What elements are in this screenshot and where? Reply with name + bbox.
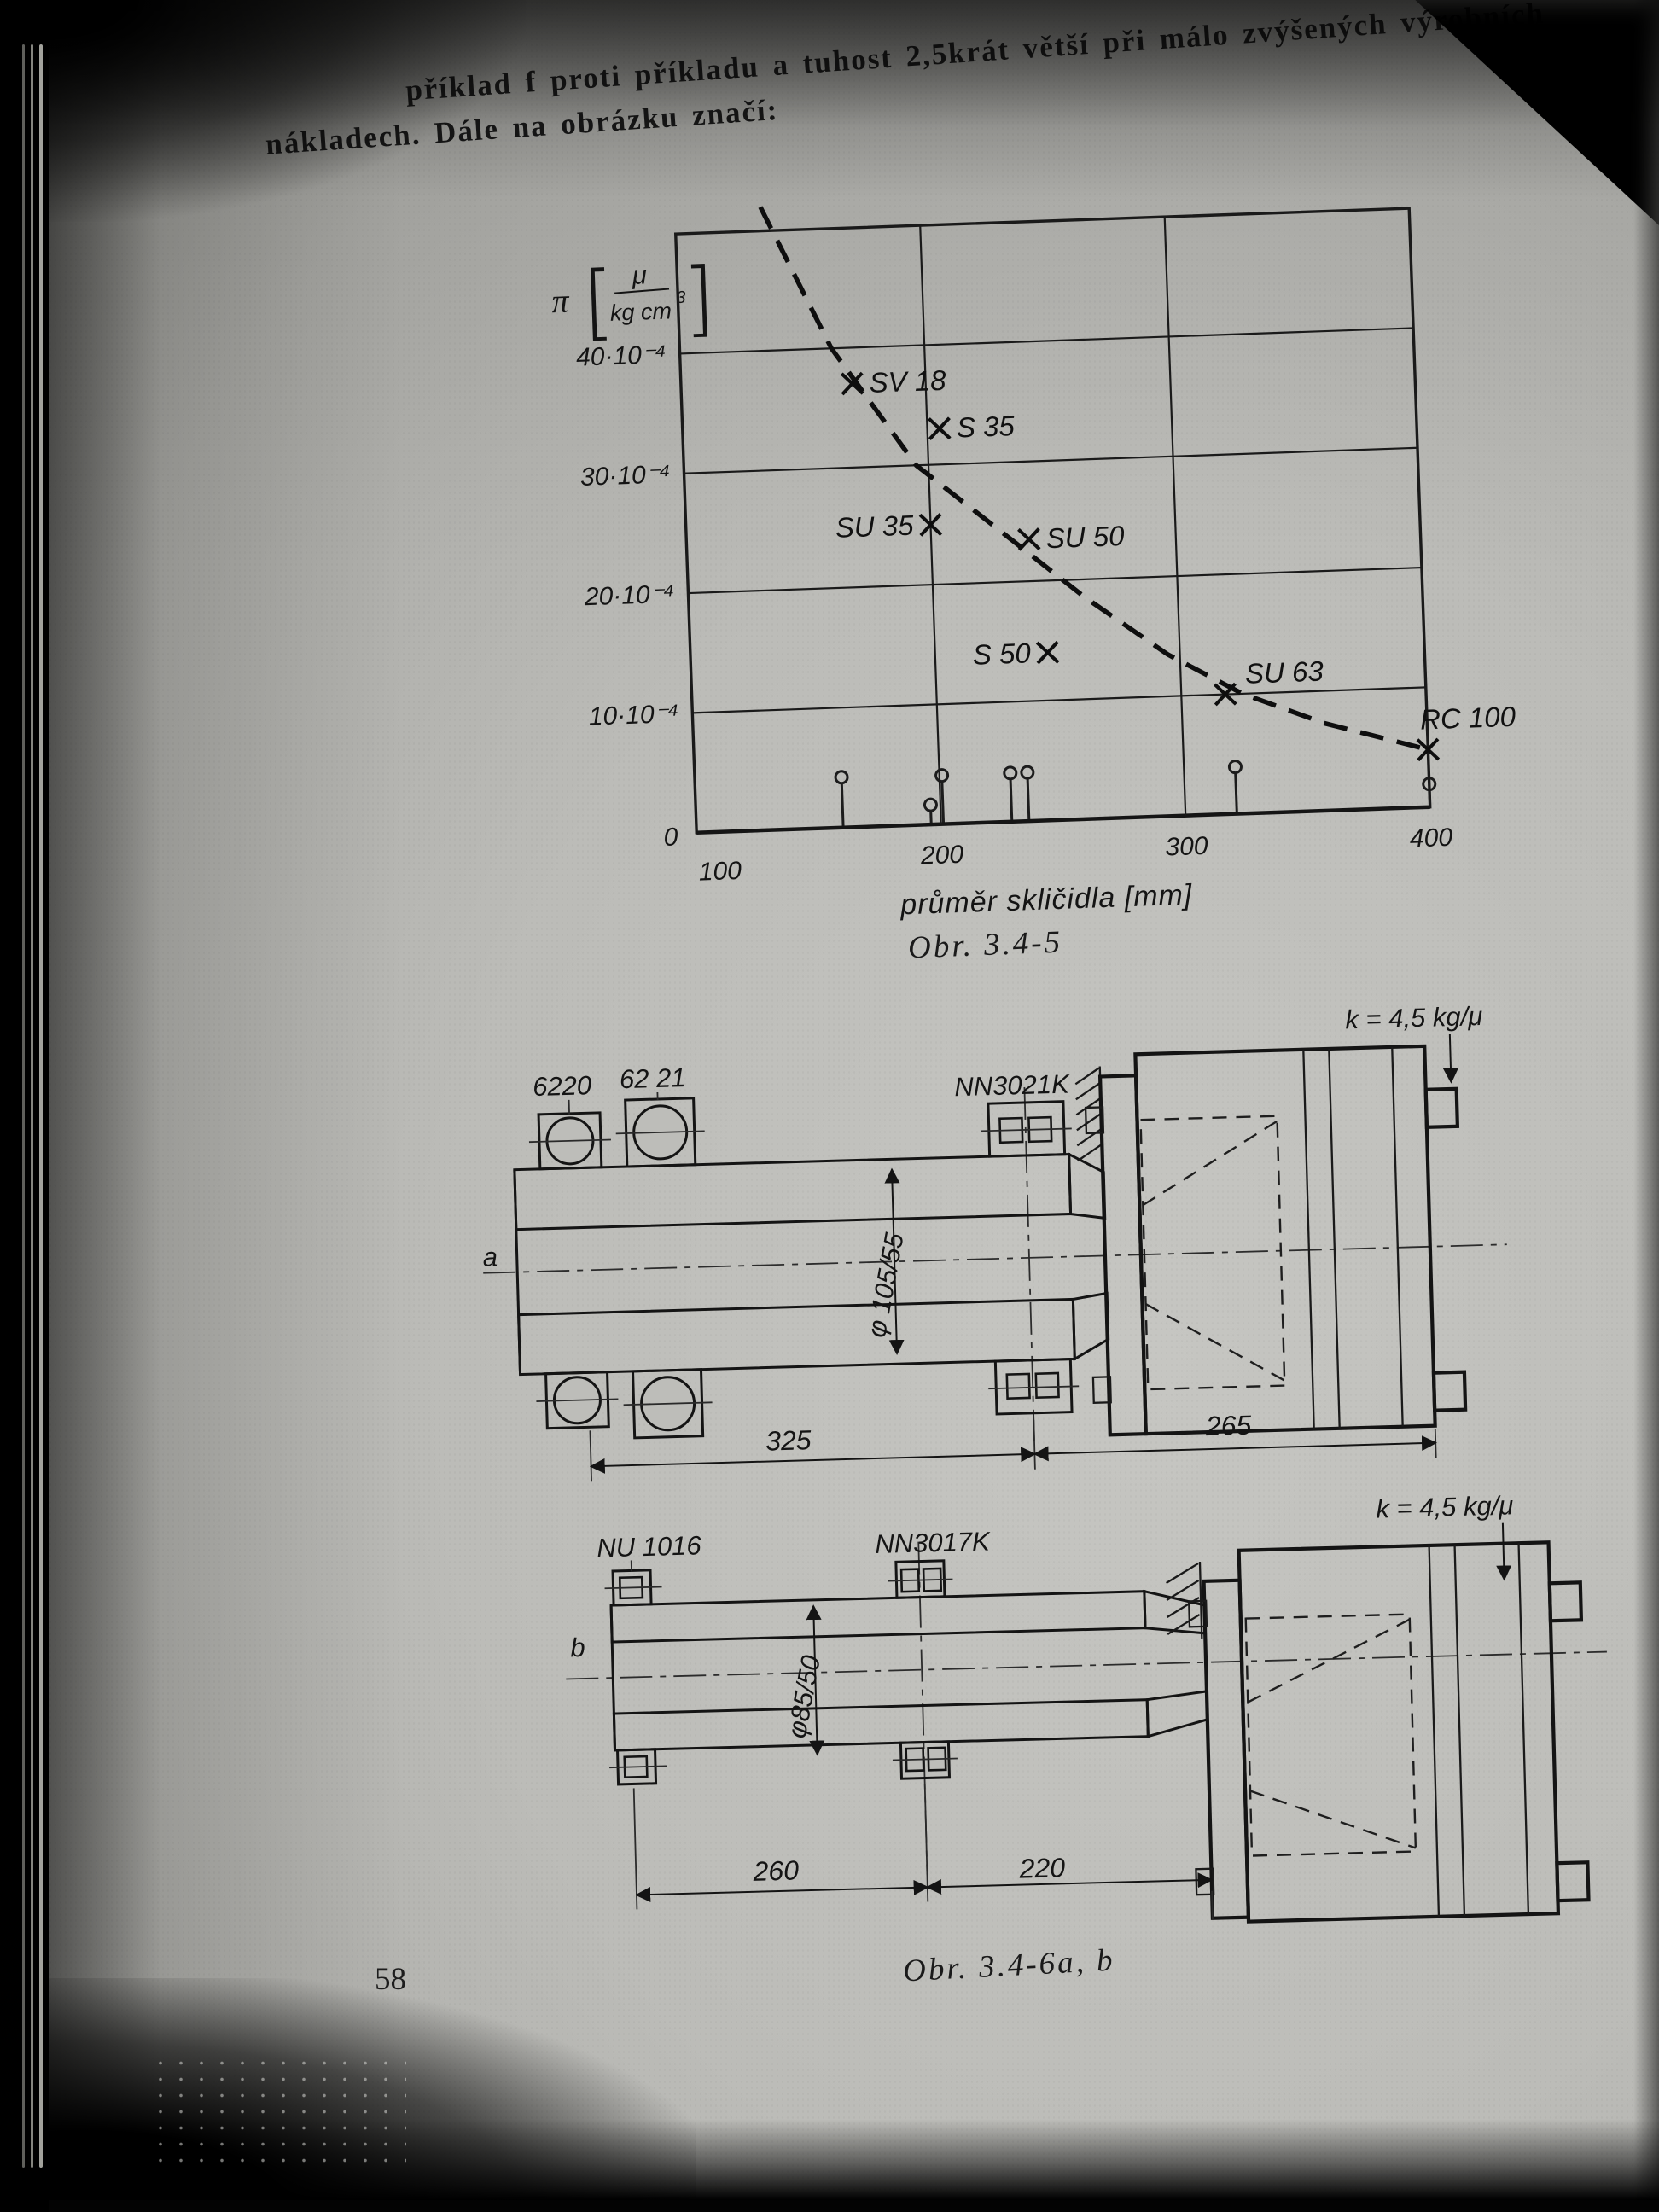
axis-pin-head xyxy=(935,769,947,781)
chuck xyxy=(1239,1541,1589,1921)
x-gridline xyxy=(1165,217,1185,816)
point-label: SU 50 xyxy=(1045,520,1126,554)
bearing-label-nn3017k: NN3017K xyxy=(875,1526,992,1559)
y-axis-unit-label: π [ μ kg cm 3 ] xyxy=(550,250,717,352)
axis-pin xyxy=(1027,778,1029,819)
axis-pin-head xyxy=(1004,767,1016,779)
paragraph-line-1: příklad f proti příkladu a tuhost 2,5krá… xyxy=(405,0,1659,113)
origin-label: 0 xyxy=(663,823,678,852)
chart-plot: π [ μ kg cm 3 ] 40·10⁻⁴30·10⁻⁴20·10⁻⁴10·… xyxy=(546,166,1605,987)
pi-symbol: π xyxy=(551,282,571,321)
axis-pin-head xyxy=(1022,766,1033,778)
point-label: SU 63 xyxy=(1244,655,1324,690)
paragraph: příklad f proti příkladu a tuhost 2,5krá… xyxy=(261,0,1659,167)
chuck xyxy=(1135,1045,1465,1434)
y-tick-label: 40·10⁻⁴ xyxy=(576,341,667,372)
axis-pin xyxy=(1429,790,1430,806)
x-tick-label: 300 xyxy=(1165,832,1208,862)
y-tick-label: 30·10⁻⁴ xyxy=(579,460,671,492)
y-tick-label: 20·10⁻⁴ xyxy=(583,580,675,612)
axis-pin xyxy=(1010,779,1012,820)
dim-260: 260 xyxy=(752,1854,800,1886)
axis-pin-head xyxy=(835,771,847,783)
page-edge xyxy=(31,44,33,2168)
shaft-label-a: a xyxy=(482,1242,498,1272)
bearing-label-nu1016: NU 1016 xyxy=(597,1530,702,1563)
unit-numerator: μ xyxy=(631,259,647,290)
paper-speckles xyxy=(150,2055,406,2174)
stiffness-label: k = 4,5 kg/μ xyxy=(1345,1001,1483,1034)
x-axis-title: průměr skličidla [mm] xyxy=(899,878,1194,921)
x-axis xyxy=(696,807,1429,833)
axis-pin-head xyxy=(1229,760,1241,772)
axis-pin xyxy=(1236,773,1237,812)
stiffness-arrow xyxy=(1450,1034,1452,1082)
stiffness-arrow xyxy=(1503,1523,1505,1580)
point-label: SU 35 xyxy=(835,509,915,544)
page-number: 58 xyxy=(375,1961,406,1998)
y-gridline xyxy=(684,448,1417,474)
shaft-label-b: b xyxy=(570,1633,585,1662)
centerline xyxy=(483,1244,1507,1273)
shadow-bottom xyxy=(48,2119,1659,2200)
x-tick-label: 200 xyxy=(919,841,963,870)
chart-frame xyxy=(676,208,1430,833)
y-gridline xyxy=(692,687,1425,713)
bearing-label-6220: 6220 xyxy=(533,1070,592,1102)
dim-325: 325 xyxy=(765,1424,812,1456)
chart-caption: Obr. 3.4-5 xyxy=(907,924,1063,967)
stiffness-label: k = 4,5 kg/μ xyxy=(1376,1490,1514,1523)
ball-bearing-6220 xyxy=(528,1113,619,1429)
bearing-label-6221: 62 21 xyxy=(619,1062,686,1094)
dim-220: 220 xyxy=(1018,1852,1066,1883)
book-spine xyxy=(0,0,49,2212)
unit-denominator: kg cm xyxy=(609,298,672,325)
page-edge xyxy=(22,44,25,2168)
paper-page: příklad f proti příkladu a tuhost 2,5krá… xyxy=(48,0,1659,2200)
scanned-book-page: příklad f proti příkladu a tuhost 2,5krá… xyxy=(0,0,1659,2212)
x-tick-label: 100 xyxy=(698,857,742,887)
y-gridline xyxy=(688,568,1421,593)
dim-265: 265 xyxy=(1204,1410,1252,1442)
x-tick-label: 400 xyxy=(1409,824,1452,853)
axis-pin xyxy=(841,783,843,826)
axis-pin xyxy=(942,782,944,823)
point-label: RC 100 xyxy=(1419,701,1516,736)
axis-pin-head xyxy=(924,799,936,811)
chart-figure: π [ μ kg cm 3 ] 40·10⁻⁴30·10⁻⁴20·10⁻⁴10·… xyxy=(546,166,1605,987)
point-label: S 50 xyxy=(972,637,1032,670)
centerline xyxy=(566,1652,1607,1679)
page-edge xyxy=(39,44,43,2168)
y-tick-label: 10·10⁻⁴ xyxy=(588,700,679,731)
bearing-label-nn3021k: NN3021K xyxy=(954,1068,1071,1102)
bracket-close: ] xyxy=(681,250,716,346)
y-gridline xyxy=(680,328,1413,353)
shadow-right xyxy=(1633,0,1659,2200)
diameter-label: φ 105/55 xyxy=(861,1230,910,1340)
diameter-label: φ85/50 xyxy=(782,1653,826,1741)
trend-curve xyxy=(760,184,1428,772)
length-dimensions xyxy=(634,1773,1213,1935)
figure-a-drawing: 6220 62 21 NN3021K xyxy=(442,979,1549,1538)
point-label: S 35 xyxy=(956,410,1016,443)
length-dimensions xyxy=(590,1407,1435,1482)
point-label: SV 18 xyxy=(869,364,947,399)
